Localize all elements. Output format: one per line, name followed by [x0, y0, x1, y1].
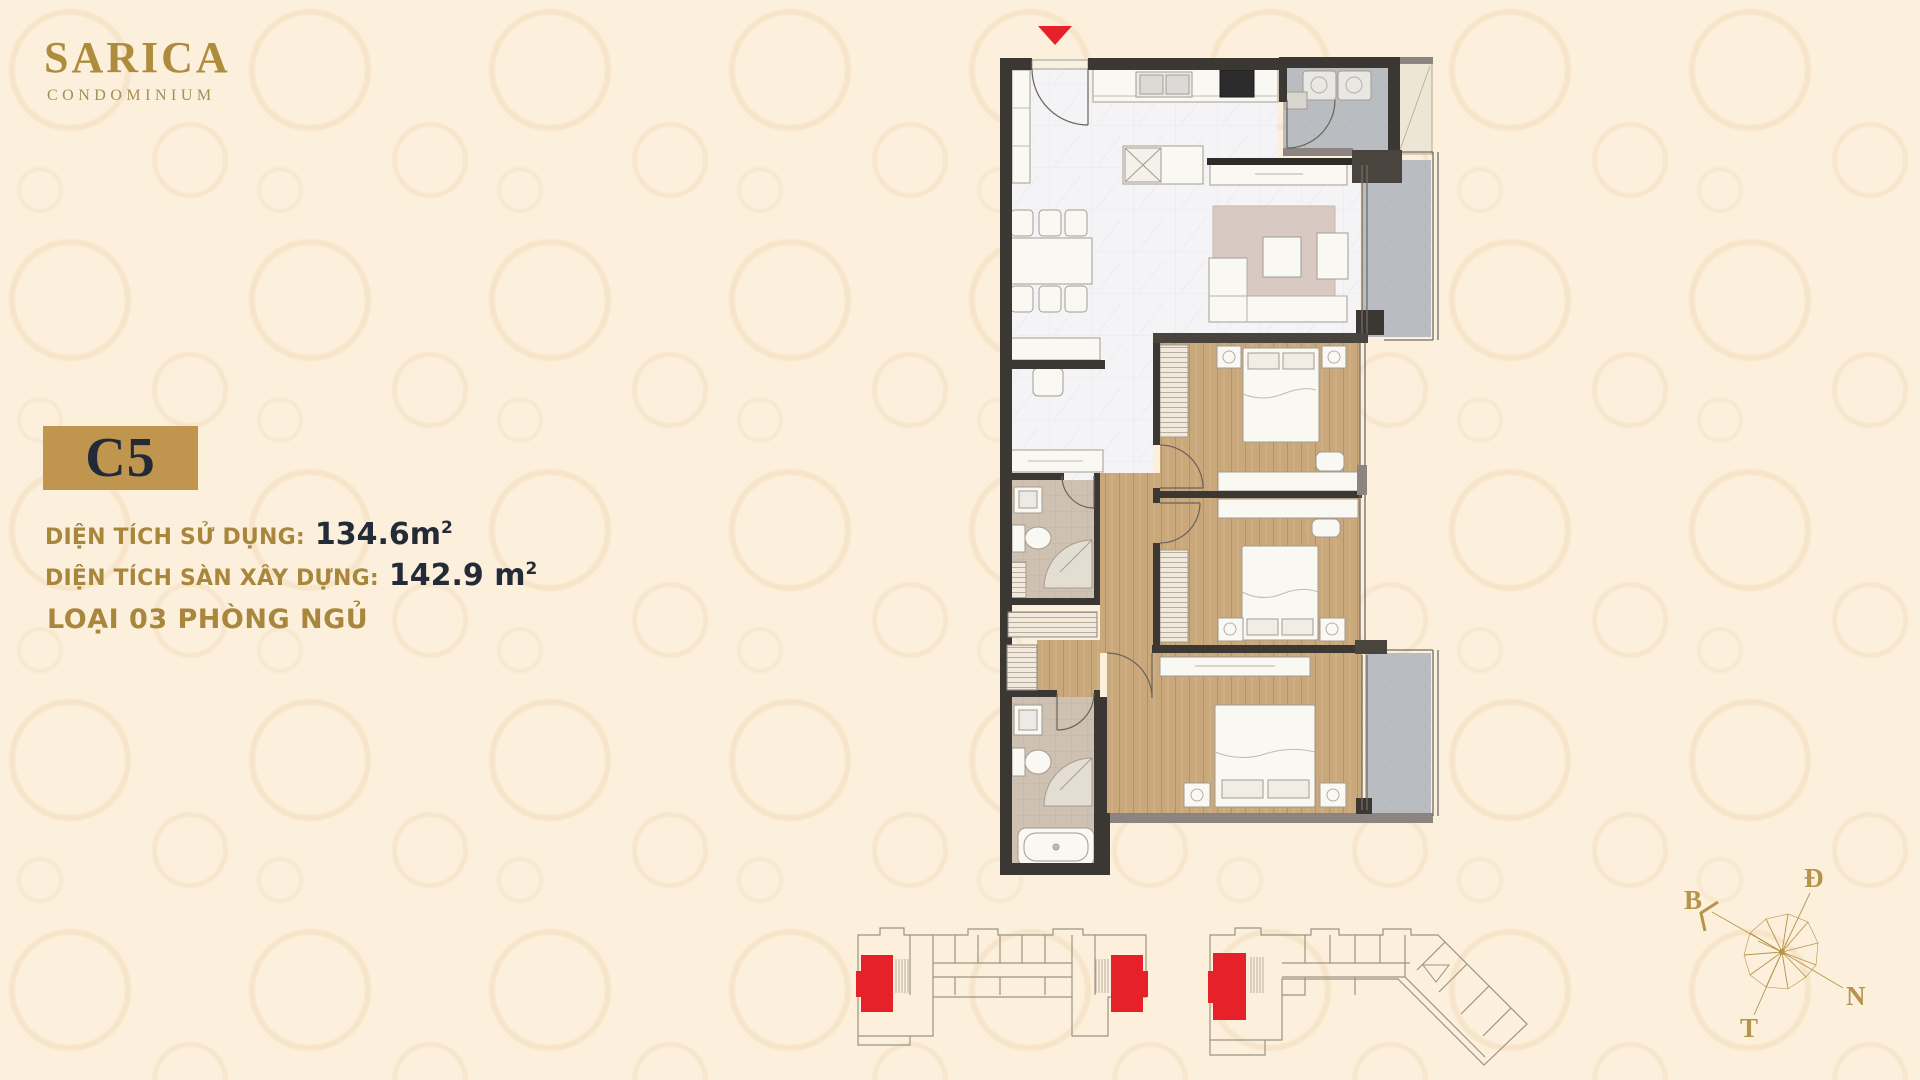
compass-east-label: Đ	[1804, 863, 1824, 893]
brand-tagline: CONDOMINIUM	[47, 88, 216, 104]
floor-plan	[985, 20, 1495, 890]
unit-code: C5	[85, 430, 155, 486]
compass-north-label: B	[1684, 885, 1702, 915]
keyplan2-unit	[1208, 953, 1246, 1020]
spec-usable-area-label: DIỆN TÍCH SỬ DỤNG:	[45, 525, 305, 550]
desk-chair	[1312, 519, 1340, 537]
desk	[1008, 338, 1100, 360]
entrance-marker-icon	[1038, 26, 1072, 45]
site-keyplan-1	[850, 905, 1160, 1050]
dining-chair	[1039, 210, 1061, 236]
nightstand	[1218, 618, 1243, 641]
nightstand	[1320, 618, 1345, 641]
spec-built-area-label: DIỆN TÍCH SÀN XÂY DỰNG:	[45, 566, 379, 591]
bath1-toilet	[1025, 527, 1051, 549]
spec-usable-area: DIỆN TÍCH SỬ DỤNG: 134.6m2	[45, 517, 453, 552]
nook-wardrobe	[1007, 645, 1037, 690]
desk-chair	[1316, 452, 1344, 471]
unit-type-label: LOẠI 03 PHÒNG NGỦ	[47, 604, 368, 635]
entry-threshold	[1032, 60, 1088, 69]
wardrobe	[1160, 345, 1188, 437]
side-table	[1317, 233, 1348, 279]
bath2-toilet	[1025, 750, 1051, 774]
keyplan1-unit-left	[856, 955, 893, 1012]
dryer	[1338, 71, 1371, 100]
brand-logo: SARICA	[44, 36, 231, 80]
spec-built-area: DIỆN TÍCH SÀN XÂY DỰNG: 142.9 m2	[45, 558, 537, 593]
stool	[1033, 368, 1063, 396]
nightstand	[1320, 783, 1346, 807]
desk	[1218, 472, 1358, 491]
compass-rose: Đ B N T	[1670, 845, 1920, 1080]
entry-closet	[1012, 70, 1030, 183]
dining-chair	[1065, 286, 1087, 312]
spec-built-area-value: 142.9	[389, 558, 484, 593]
dining-table	[1008, 238, 1092, 284]
coffee-table	[1263, 237, 1301, 277]
site-keyplan-2	[1195, 905, 1540, 1080]
brochure-page: { "brand": { "name": "SARICA", "tagline"…	[0, 0, 1920, 1080]
desk	[1218, 499, 1358, 518]
keyplan1-unit-right	[1111, 955, 1148, 1012]
compass-south-label: N	[1846, 981, 1866, 1011]
bath1-toilet-tank	[1012, 525, 1025, 552]
bath2-toilet-tank	[1012, 748, 1025, 776]
dining-chair	[1039, 286, 1061, 312]
wardrobe	[1160, 550, 1188, 642]
hall-wardrobe	[1008, 612, 1097, 637]
nightstand	[1322, 346, 1346, 368]
washer	[1303, 71, 1336, 100]
dining-chair	[1011, 286, 1033, 312]
spec-usable-area-value: 134.6	[315, 517, 410, 552]
dining-chair	[1011, 210, 1033, 236]
balcony-2-floor	[1365, 653, 1431, 813]
cooktop	[1220, 70, 1254, 97]
unit-code-badge: C5	[43, 426, 198, 490]
hall-floor	[1100, 473, 1160, 653]
hall-nook-floor	[1037, 640, 1100, 697]
dining-chair	[1065, 210, 1087, 236]
nightstand	[1217, 346, 1241, 368]
compass-west-label: T	[1740, 1013, 1758, 1043]
nightstand	[1184, 783, 1210, 807]
